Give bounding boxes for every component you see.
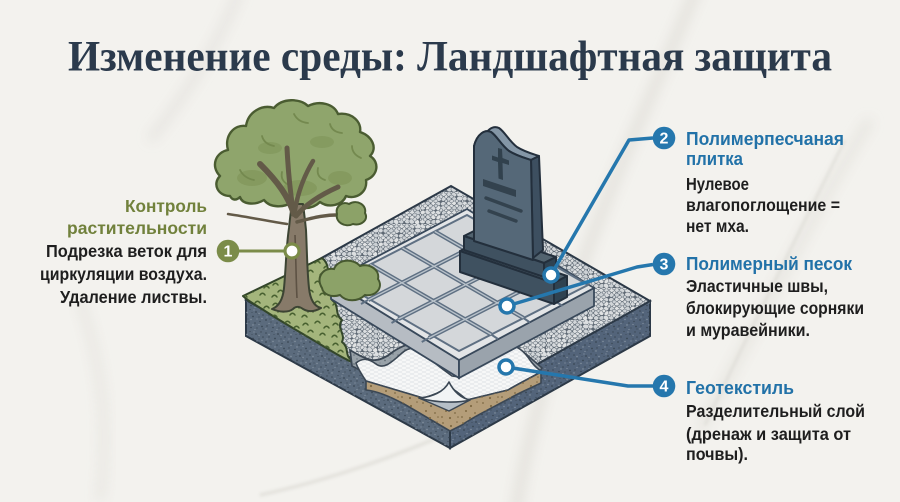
- svg-text:растительности: растительности: [67, 218, 207, 238]
- svg-text:Разделительный слой: Разделительный слой: [686, 401, 865, 421]
- svg-text:Полимерпесчаная: Полимерпесчаная: [686, 129, 844, 149]
- svg-text:Геотекстиль: Геотекстиль: [686, 378, 794, 398]
- svg-text:Нулевое: Нулевое: [686, 174, 749, 194]
- svg-text:Полимерный песок: Полимерный песок: [686, 254, 853, 274]
- svg-text:Контроль: Контроль: [125, 196, 207, 216]
- svg-text:3: 3: [660, 257, 669, 274]
- svg-text:почвы).: почвы).: [686, 444, 748, 464]
- svg-text:плитка: плитка: [686, 149, 744, 169]
- svg-text:(дренаж и защита от: (дренаж и защита от: [686, 424, 851, 444]
- svg-text:1: 1: [224, 244, 233, 261]
- svg-text:2: 2: [660, 131, 669, 148]
- svg-text:Подрезка веток для: Подрезка веток для: [46, 241, 207, 261]
- svg-text:нет мха.: нет мха.: [686, 216, 749, 236]
- svg-text:блокирующие сорняки: блокирующие сорняки: [686, 298, 864, 318]
- svg-text:4: 4: [660, 379, 669, 396]
- svg-text:и муравейники.: и муравейники.: [686, 320, 810, 340]
- svg-text:Эластичные швы,: Эластичные швы,: [686, 276, 828, 296]
- svg-text:Удаление листвы.: Удаление листвы.: [60, 287, 207, 307]
- svg-text:влагопоглощение =: влагопоглощение =: [686, 195, 840, 215]
- svg-text:Изменение среды: Ландшафтная з: Изменение среды: Ландшафтная защита: [68, 33, 832, 81]
- svg-text:циркуляции воздуха.: циркуляции воздуха.: [40, 264, 207, 284]
